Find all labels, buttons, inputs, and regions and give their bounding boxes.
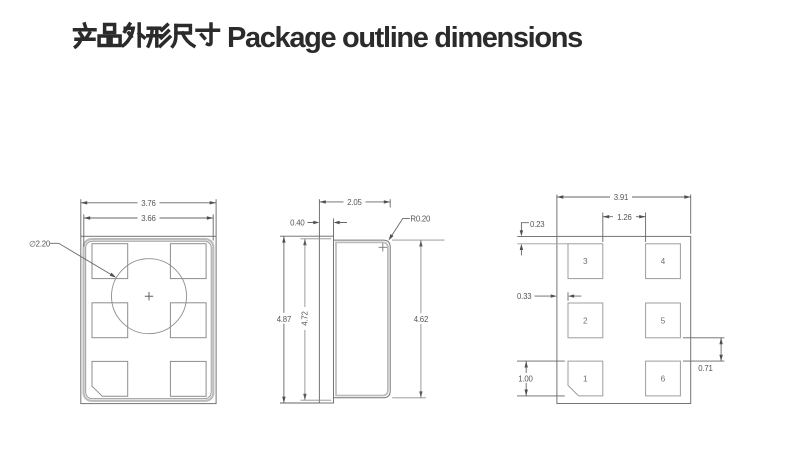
svg-text:0.40: 0.40 (290, 219, 305, 228)
svg-text:1.00: 1.00 (518, 374, 533, 383)
svg-text:4: 4 (661, 256, 666, 266)
svg-text:1: 1 (583, 373, 588, 383)
svg-text:0.23: 0.23 (530, 220, 544, 229)
svg-text:6: 6 (661, 373, 666, 383)
svg-text:2: 2 (583, 315, 588, 325)
svg-text:3.91: 3.91 (614, 193, 628, 202)
svg-text:4.62: 4.62 (414, 315, 428, 324)
svg-text:3: 3 (583, 256, 588, 266)
svg-text:4.87: 4.87 (277, 315, 291, 324)
svg-text:2.05: 2.05 (347, 198, 362, 207)
svg-text:0.71: 0.71 (698, 364, 712, 373)
svg-text:∅2.20: ∅2.20 (29, 239, 51, 248)
svg-text:0.33: 0.33 (517, 292, 531, 301)
svg-text:3.66: 3.66 (141, 214, 155, 223)
svg-text:1.26: 1.26 (617, 213, 631, 222)
svg-text:Package outline dimensions: Package outline dimensions (227, 22, 582, 54)
svg-text:3.76: 3.76 (141, 199, 155, 208)
svg-text:4.72: 4.72 (301, 311, 310, 325)
svg-text:5: 5 (661, 315, 666, 325)
svg-text:R0.20: R0.20 (410, 215, 431, 224)
